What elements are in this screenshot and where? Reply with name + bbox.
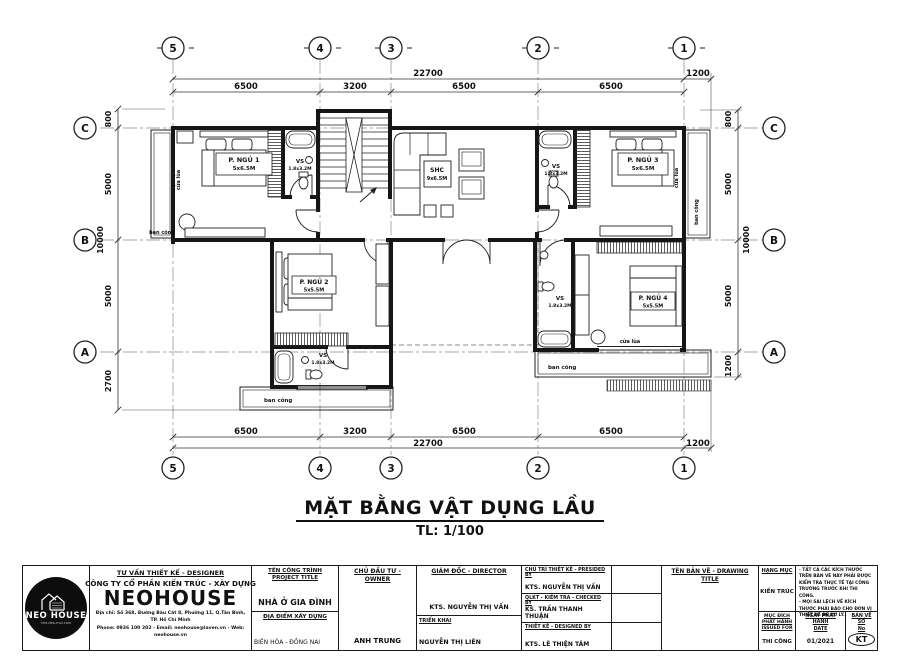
issued-value: THI CÔNG <box>760 639 794 645</box>
label-vs2-size: 1.8x3.2M <box>544 171 568 177</box>
issued-heading: MỤC ĐÍCH PHÁT HÀNH <box>760 614 794 626</box>
label-living-name: SHC <box>430 167 444 174</box>
checked-value: KS. TRẦN THANH THUẬN <box>525 606 608 620</box>
dim-left-seg4: 2700 <box>104 369 113 392</box>
label-sliding-bed4: cửa lùa <box>620 338 640 345</box>
drawing-title-heading: TÊN BẢN VẼ - DRAWING TITLE <box>665 569 755 584</box>
dimensions-top: 22700 1200 6500 3200 6500 6500 <box>170 69 714 95</box>
signature-column <box>611 566 661 650</box>
dim-right-overall: 10000 <box>742 226 751 254</box>
label-balcony-left: ban công <box>149 229 175 236</box>
bubble-right-C: C <box>770 123 778 135</box>
bubble-bot-2: 2 <box>534 463 541 475</box>
checked-heading: QLKT - KIỂM TRA - CHECKED BY <box>525 596 608 606</box>
bubble-left-B: B <box>81 235 89 247</box>
bubble-top-1: 1 <box>680 43 687 55</box>
title-block: NEO HOUSE nha.dep.moi.com TƯ VẤN THIẾT K… <box>22 565 878 651</box>
label-bed4-size: 5x5.5M <box>643 304 664 310</box>
dim-right-seg2: 5000 <box>724 172 733 195</box>
bubble-right-A: A <box>770 347 779 359</box>
bubble-bot-5: 5 <box>169 463 176 475</box>
brand-name: NEOHOUSE <box>104 588 237 609</box>
dim-right-seg1: 800 <box>724 110 733 127</box>
stairs <box>320 118 388 202</box>
owner-heading: CHỦ ĐẦU TƯ - OWNER <box>341 568 414 584</box>
logo-tagline: nha.dep.moi.com <box>41 621 72 625</box>
bubble-left-C: C <box>81 123 89 135</box>
issue-info-cell: HẠNG MỤC KIẾN TRÚC - TẤT CẢ CÁC KÍCH THƯ… <box>758 566 877 650</box>
sheet-heading: BẢN VẼ SỐ <box>847 614 876 626</box>
drawing-sheet: 22700 1200 6500 3200 6500 6500 6500 3200… <box>0 0 900 656</box>
label-bed2-name: P. NGỦ 2 <box>300 278 329 286</box>
presided-value: KTS. NGUYỄN THỊ VẤN <box>525 584 608 591</box>
grid-lines <box>100 60 778 455</box>
date-heading-en: DATE <box>797 627 844 633</box>
location-value: BIÊN HÒA - ĐỒNG NAI <box>254 639 336 646</box>
director-cell: GIÁM ĐỐC - DIRECTOR KTS. NGUYỄN THỊ VẤN … <box>416 566 521 650</box>
label-vs2-name: VS <box>552 164 560 170</box>
bubble-bot-3: 3 <box>387 463 394 475</box>
company-address: Địa chỉ: Số 368, Đường Bàu Cát 8, Phường… <box>92 611 249 624</box>
project-heading: TÊN CÔNG TRÌNH <box>254 568 336 575</box>
furniture-bed3 <box>600 131 676 236</box>
dimensions-left: 800 5000 10000 5000 2700 <box>96 106 121 413</box>
designed-heading: THIẾT KẾ - DESIGNED BY <box>525 625 608 630</box>
date-heading: NGÀY PHÁT HÀNH <box>797 614 844 626</box>
dim-bot-seg4: 6500 <box>599 427 623 437</box>
owner-value: ANH TRUNG <box>341 637 414 645</box>
dim-left-seg3: 5000 <box>104 284 113 307</box>
director-value: KTS. NGUYỄN THỊ VẤN <box>419 604 519 611</box>
label-sliding-bed1: cửa lùa <box>175 170 182 190</box>
bubble-top-4: 4 <box>316 43 323 55</box>
deploy-value: NGUYỄN THỊ LIÊN <box>419 639 519 646</box>
bubble-bot-1: 1 <box>680 463 687 475</box>
dimensions-bottom: 6500 3200 6500 6500 22700 1200 <box>170 427 714 451</box>
category-value: KIẾN TRÚC <box>760 589 794 595</box>
label-vs1-size: 1.8x3.2M <box>288 166 312 172</box>
designer-heading: TƯ VẤN THIẾT KẾ - DESIGNER <box>117 569 224 577</box>
room-labels: P. NGỦ 1 5x6.5M P. NGỦ 3 5x6.5M SHC 9x6.… <box>149 153 700 404</box>
sheet-number: KT <box>848 633 876 646</box>
signoff-cell: CHỦ TRÌ THIẾT KẾ - PRESIDED BY KTS. NGUY… <box>521 566 611 650</box>
dim-top-seg4: 6500 <box>599 82 623 92</box>
bubble-bot-4: 4 <box>316 463 323 475</box>
designed-value: KTS. LÊ THIỆN TÂM <box>525 641 608 648</box>
owner-cell: CHỦ ĐẦU TƯ - OWNER ANH TRUNG <box>338 566 416 650</box>
note-1: - TẤT CẢ CÁC KÍCH THƯỚC TRÊN BẢN VẼ NÀY … <box>799 568 874 600</box>
label-vs3-name: VS <box>319 353 327 359</box>
label-vs3-size: 1.8x3.2M <box>311 360 335 366</box>
dim-bot-overall: 22700 <box>413 439 443 449</box>
dim-left-overall: 10000 <box>96 226 105 254</box>
void-edges <box>391 240 538 345</box>
date-value: 01/2021 <box>797 638 844 645</box>
director-heading: GIÁM ĐỐC - DIRECTOR <box>419 568 519 576</box>
dim-right-seg3: 5000 <box>724 284 733 307</box>
designer-cell: TƯ VẤN THIẾT KẾ - DESIGNER CÔNG TY CỔ PH… <box>89 566 251 650</box>
drawing-title-text: MẶT BẰNG VẬT DỤNG LẦU <box>296 497 604 522</box>
category-heading: HẠNG MỤC <box>760 568 794 575</box>
label-balcony-right: ban công <box>693 199 700 225</box>
logo-cell: NEO HOUSE nha.dep.moi.com <box>23 566 89 650</box>
presided-heading: CHỦ TRÌ THIẾT KẾ - PRESIDED BY <box>525 568 608 578</box>
bubble-right-B: B <box>770 235 778 247</box>
deploy-heading: TRIỂN KHAI <box>419 618 519 624</box>
label-living-size: 9x6.5M <box>427 176 448 182</box>
label-vs1-name: VS <box>296 159 304 165</box>
dim-bot-ext: 1200 <box>686 439 710 449</box>
company-contact: Phone: 0936 100 202 - Email: neohouse@la… <box>92 626 249 639</box>
logo-brand-text: NEO HOUSE <box>26 611 87 621</box>
bubble-top-5: 5 <box>169 43 176 55</box>
bubble-left-A: A <box>81 347 90 359</box>
neohouse-logo: NEO HOUSE nha.dep.moi.com <box>25 577 87 639</box>
dim-left-seg2: 5000 <box>104 172 113 195</box>
dim-bot-seg3: 6500 <box>452 427 476 437</box>
label-balcony-bl: ban công <box>264 397 292 404</box>
bubble-top-3: 3 <box>387 43 394 55</box>
label-bed1-name: P. NGỦ 1 <box>228 154 260 164</box>
label-bed1-size: 5x6.5M <box>233 166 256 172</box>
dim-top-ext: 1200 <box>686 69 710 79</box>
dimensions-right: 800 5000 10000 5000 1200 <box>724 107 751 380</box>
label-bed2-size: 5x5.5M <box>304 288 325 294</box>
label-sliding-bed3: cửa lùa <box>673 168 680 188</box>
furniture-bed1 <box>177 131 268 237</box>
label-vs4-size: 1.8x3.2M <box>548 303 572 309</box>
dim-right-seg4: 1200 <box>724 354 733 377</box>
label-vs4-name: VS <box>556 296 564 302</box>
label-bed4-name: P. NGỦ 4 <box>639 294 668 302</box>
floor-plan-svg: 22700 1200 6500 3200 6500 6500 6500 3200… <box>0 0 900 495</box>
house-icon <box>39 591 73 611</box>
dim-bot-seg2: 3200 <box>343 427 367 437</box>
dim-bot-seg1: 6500 <box>234 427 258 437</box>
dim-top-seg3: 6500 <box>452 82 476 92</box>
project-heading-en: PROJECT TITLE <box>254 575 336 582</box>
issued-heading-en: ISSUED FOR <box>760 626 794 632</box>
drawing-title: MẶT BẰNG VẬT DỤNG LẦU TL: 1/100 <box>0 497 900 539</box>
dim-top-overall: 22700 <box>413 69 443 79</box>
bubble-top-2: 2 <box>534 43 541 55</box>
project-title: NHÀ Ở GIA ĐÌNH <box>254 598 336 607</box>
drawing-scale: TL: 1/100 <box>0 524 900 539</box>
sheet-heading-en: No <box>858 627 865 633</box>
dim-top-seg2: 3200 <box>343 82 367 92</box>
grid-bubbles: 5 4 3 2 1 5 4 3 2 1 C B A C B A <box>74 37 785 479</box>
label-bed3-name: P. NGỦ 3 <box>627 154 658 164</box>
dim-left-seg1: 800 <box>104 110 113 127</box>
furniture-living <box>394 133 484 217</box>
dim-top-seg1: 6500 <box>234 82 258 92</box>
drawing-title-cell: TÊN BẢN VẼ - DRAWING TITLE <box>661 566 758 650</box>
label-bed3-size: 5x6.5M <box>632 166 655 172</box>
project-cell: TÊN CÔNG TRÌNH PROJECT TITLE NHÀ Ở GIA Đ… <box>251 566 338 650</box>
location-heading: ĐỊA ĐIỂM XÂY DỰNG <box>254 614 336 621</box>
label-balcony-br: ban công <box>548 364 576 371</box>
